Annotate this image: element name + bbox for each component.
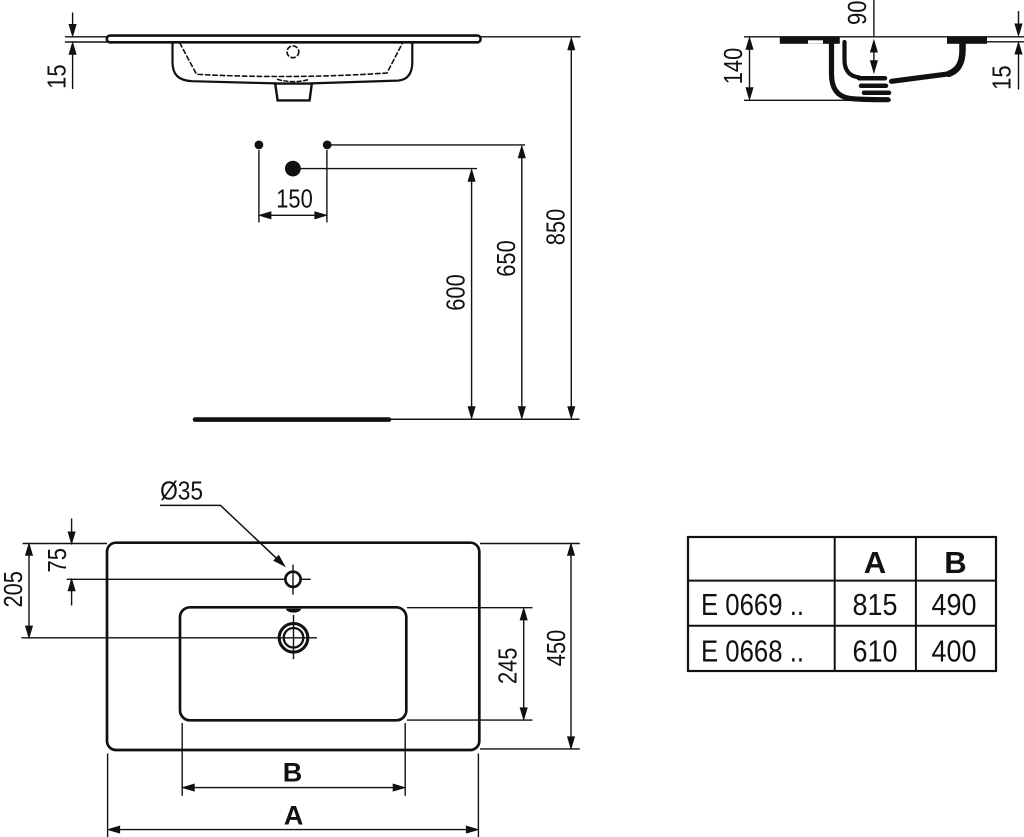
svg-text:815: 815 [853,587,898,622]
svg-text:E 0668 ..: E 0668 .. [701,633,804,668]
svg-text:A: A [864,545,886,580]
svg-text:600: 600 [441,274,471,311]
svg-text:90: 90 [842,1,872,26]
svg-text:B: B [283,758,303,788]
svg-text:15: 15 [987,65,1017,90]
svg-text:610: 610 [853,633,898,668]
svg-text:650: 650 [491,240,521,277]
svg-text:245: 245 [493,648,523,685]
svg-text:75: 75 [42,548,72,573]
svg-text:450: 450 [541,630,571,667]
svg-text:490: 490 [932,587,977,622]
svg-text:B: B [944,545,966,580]
svg-text:A: A [284,801,304,831]
svg-text:850: 850 [541,209,571,246]
svg-text:140: 140 [718,48,748,85]
svg-text:15: 15 [42,64,72,89]
svg-text:E 0669 ..: E 0669 .. [701,587,804,622]
svg-text:Ø35: Ø35 [160,476,203,506]
svg-text:400: 400 [932,633,977,668]
svg-text:150: 150 [276,184,313,214]
svg-text:205: 205 [0,571,28,608]
